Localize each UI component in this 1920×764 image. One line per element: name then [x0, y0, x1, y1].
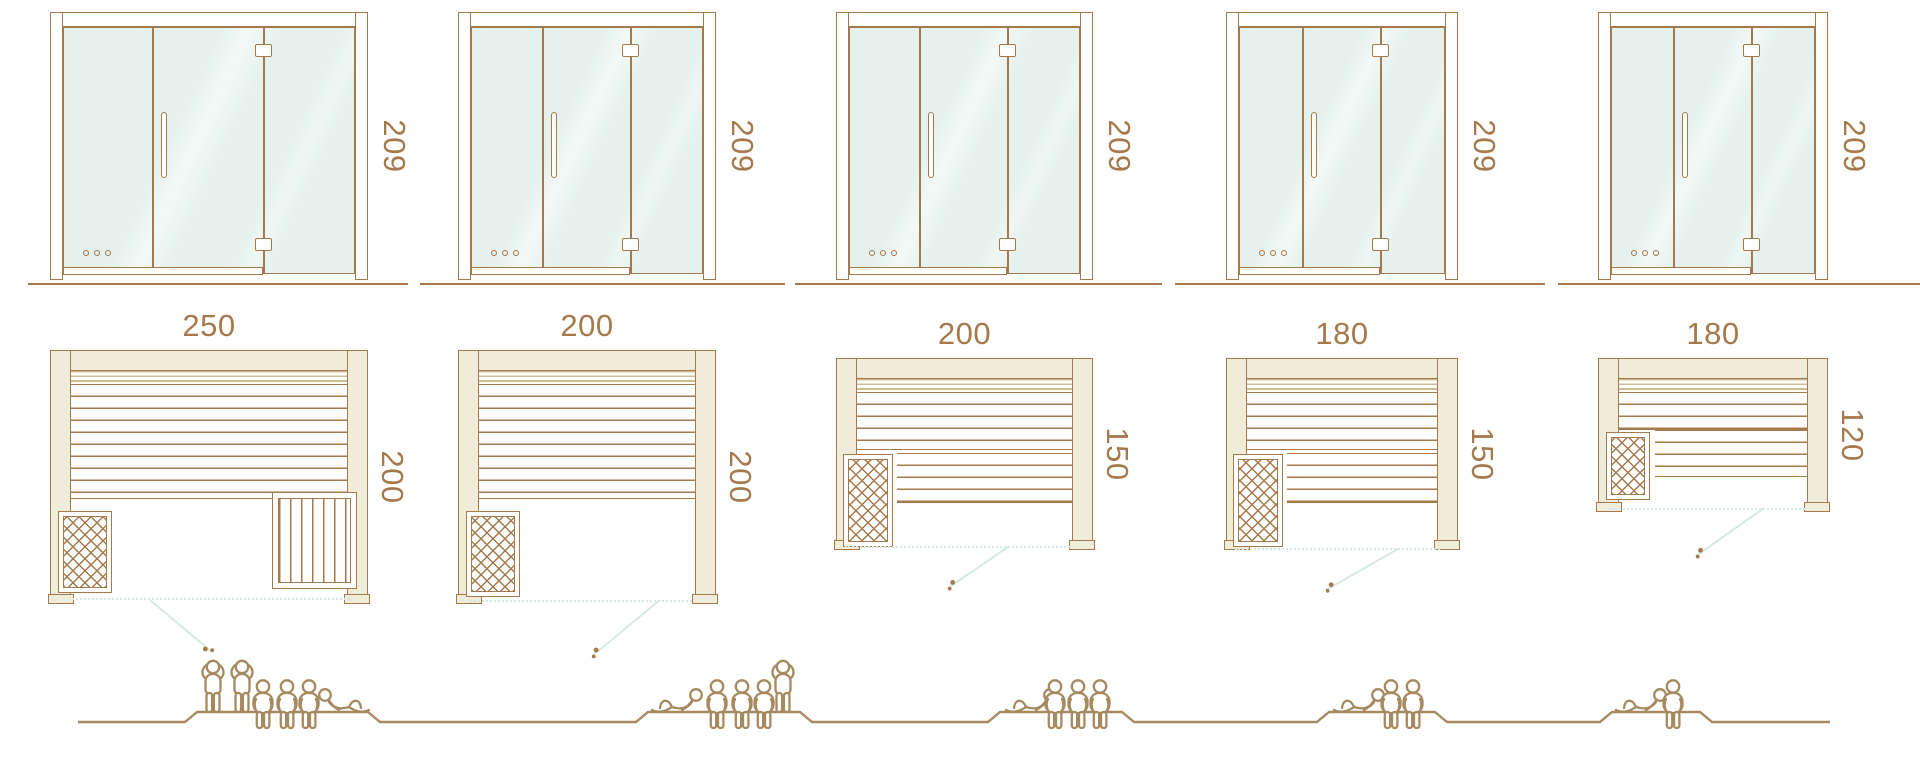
person-stand — [202, 661, 223, 712]
person-lie — [652, 689, 702, 711]
person-sit — [1069, 680, 1088, 728]
person-lie — [319, 689, 369, 711]
person-sit — [1382, 680, 1401, 728]
person-sit — [254, 680, 273, 728]
person-lie — [1616, 689, 1666, 711]
person-stand — [231, 661, 252, 712]
person-sit — [1091, 680, 1110, 728]
person-sit — [708, 680, 727, 728]
person-stand — [772, 661, 793, 712]
person-lie — [1334, 689, 1384, 711]
person-sit — [755, 680, 774, 728]
ground-line — [78, 712, 1830, 722]
capacity-figures: .pl{fill:none;stroke:#a6895f;stroke-widt… — [0, 0, 1920, 764]
person-sit — [300, 680, 319, 728]
person-sit — [733, 680, 752, 728]
person-sit — [278, 680, 297, 728]
person-sit — [1664, 680, 1683, 728]
person-sit — [1046, 680, 1065, 728]
sauna-comparison-diagram: 209 250 200 — [0, 0, 1920, 764]
person-sit — [1404, 680, 1423, 728]
